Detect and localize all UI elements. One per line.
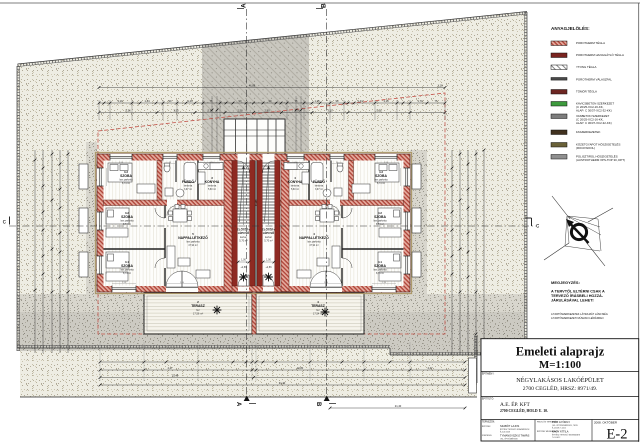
svg-text:NÉGYLAKÁSOS LAKÓÉPÜLET: NÉGYLAKÁSOS LAKÓÉPÜLET xyxy=(516,376,604,384)
svg-text:SZOBA: SZOBA xyxy=(374,215,386,219)
svg-text:21,40: 21,40 xyxy=(395,404,402,408)
svg-text:31,40: 31,40 xyxy=(279,381,286,385)
svg-text:3,19: 3,19 xyxy=(117,99,123,103)
svg-text:ÉPÍTTETŐ:: ÉPÍTTETŐ: xyxy=(482,398,494,401)
svg-text:8,74 m²: 8,74 m² xyxy=(377,182,385,185)
svg-text:4,47: 4,47 xyxy=(427,366,433,370)
svg-text:(AUSTROTHERM XPS-TOP 30, DPT): (AUSTROTHERM XPS-TOP 30, DPT) xyxy=(576,158,625,162)
svg-text:3,50: 3,50 xyxy=(173,108,179,112)
svg-text:YTONG TÉGLA: YTONG TÉGLA xyxy=(576,64,597,69)
svg-text:1,26: 1,26 xyxy=(187,99,193,103)
svg-text:É-3-01/2008: É-3-01/2008 xyxy=(500,430,510,433)
svg-text:A: A xyxy=(241,3,248,8)
svg-text:2700 CEGLÉD, HOLD U. 10.: 2700 CEGLÉD, HOLD U. 10. xyxy=(500,408,548,413)
svg-text:SZOBA: SZOBA xyxy=(375,174,387,178)
svg-text:FÜRDŐ: FÜRDŐ xyxy=(313,179,325,184)
svg-text:3,97 m²: 3,97 m² xyxy=(184,188,192,191)
svg-text:2,50: 2,50 xyxy=(264,108,270,112)
svg-text:1,00: 1,00 xyxy=(266,259,271,262)
svg-text:M=1:100: M=1:100 xyxy=(539,359,582,371)
svg-text:3,19: 3,19 xyxy=(383,99,389,103)
svg-text:B: B xyxy=(321,3,328,8)
svg-text:T-01-0412: T-01-0412 xyxy=(552,437,560,439)
svg-text:8,74 m²: 8,74 m² xyxy=(123,223,131,226)
svg-text:TÖMÖR TÉGLA: TÖMÖR TÉGLA xyxy=(576,89,597,94)
svg-text:POROTHERM TÉGLA: POROTHERM TÉGLA xyxy=(576,40,605,45)
svg-text:A: A xyxy=(235,402,241,407)
svg-text:POROTHERM HANGGÁTLÓ TÉGLA: POROTHERM HANGGÁTLÓ TÉGLA xyxy=(576,52,624,57)
svg-text:POROTHERM VÁLASZFAL: POROTHERM VÁLASZFAL xyxy=(576,78,612,82)
svg-text:É-1/2008. T-0412: É-1/2008. T-0412 xyxy=(552,426,566,429)
svg-text:+2,86: +2,86 xyxy=(265,266,272,269)
svg-text:8,74 m²: 8,74 m² xyxy=(123,272,131,275)
svg-text:3,50: 3,50 xyxy=(327,108,333,112)
svg-text:ÉPÍTMÉNY:: ÉPÍTMÉNY: xyxy=(482,373,495,376)
svg-text:4,47: 4,47 xyxy=(167,366,173,370)
svg-text:NAPPALI-ÉTKEZŐ: NAPPALI-ÉTKEZŐ xyxy=(178,235,208,240)
svg-text:A.E. ÉP. KFT: A.E. ÉP. KFT xyxy=(500,400,531,408)
svg-text:17,56 m²: 17,56 m² xyxy=(193,312,203,316)
svg-text:TERVEZŐ ÍRÁSBELI HOZZÁ-: TERVEZŐ ÍRÁSBELI HOZZÁ- xyxy=(551,293,604,298)
svg-text:TERVEZŐK:: TERVEZŐK: xyxy=(482,421,495,424)
svg-text:5,70 m²: 5,70 m² xyxy=(264,240,273,243)
svg-text:1,70: 1,70 xyxy=(417,99,423,103)
svg-text:SZOBA: SZOBA xyxy=(121,264,133,268)
svg-text:47,94 m²: 47,94 m² xyxy=(309,244,319,247)
svg-text:FÜRDŐ: FÜRDŐ xyxy=(182,179,194,184)
svg-text:1,26: 1,26 xyxy=(314,99,320,103)
svg-text:15,48: 15,48 xyxy=(172,373,179,377)
svg-text:A TARTÓSZERKEZETI MŰSZAKI LEÍR: A TARTÓSZERKEZETI MŰSZAKI LEÍRÁSBAN xyxy=(551,317,604,320)
svg-text:ALAP: C 30/37-XC2-32-KK): ALAP: C 30/37-XC2-32-KK) xyxy=(576,109,612,113)
svg-text:10,80: 10,80 xyxy=(297,366,304,370)
svg-text:TYMANOVSZKIJ TAMÁS: TYMANOVSZKIJ TAMÁS xyxy=(500,434,530,438)
svg-text:A TARTÓSZERKEZETEK LÁTRAJZÁT L: A TARTÓSZERKEZETEK LÁTRAJZÁT LÁSD MÉG xyxy=(551,313,608,316)
svg-text:2700 CEGLÉD, HRSZ: 8971/49.: 2700 CEGLÉD, HRSZ: 8971/49. xyxy=(523,384,598,392)
svg-text:41,88: 41,88 xyxy=(249,83,256,87)
svg-text:ALAP: C 30/37-XC2-32-KK): ALAP: C 30/37-XC2-32-KK) xyxy=(576,121,612,125)
svg-text:KONYHA: KONYHA xyxy=(288,180,303,184)
svg-text:5,36: 5,36 xyxy=(125,108,131,112)
svg-text:FASZERKEZETEK: FASZERKEZETEK xyxy=(576,130,600,134)
svg-text:SZOBA: SZOBA xyxy=(121,215,133,219)
svg-text:STATIKUS:: STATIKUS: xyxy=(482,434,492,437)
svg-text:1,18: 1,18 xyxy=(437,83,443,87)
svg-text:KONYHA: KONYHA xyxy=(205,180,220,184)
svg-text:(ROCKWOOL): (ROCKWOOL) xyxy=(576,146,595,150)
svg-text:ANYAGJELÖLÉS:: ANYAGJELÖLÉS: xyxy=(551,24,590,31)
svg-text:A TERVTŐL ELTÉRNI CSAK A: A TERVTŐL ELTÉRNI CSAK A xyxy=(551,289,605,294)
svg-text:5,60 m²: 5,60 m² xyxy=(208,188,216,191)
svg-text:3,97 m²: 3,97 m² xyxy=(315,188,323,191)
svg-text:5,60 m²: 5,60 m² xyxy=(291,188,299,191)
svg-text:TERASZ: TERASZ xyxy=(311,304,325,308)
svg-text:8,74 m²: 8,74 m² xyxy=(376,223,384,226)
svg-text:2008. OKTÓBER: 2008. OKTÓBER xyxy=(594,420,618,425)
svg-text:SZOBA: SZOBA xyxy=(120,174,132,178)
svg-text:LÉPCSŐ: LÉPCSŐ xyxy=(263,230,275,235)
svg-text:TERASZ: TERASZ xyxy=(191,304,205,308)
svg-text:NAPPALI-ÉTKEZŐ: NAPPALI-ÉTKEZŐ xyxy=(299,235,329,240)
svg-text:JÁRULÁSÁVAL LEHET!: JÁRULÁSÁVAL LEHET! xyxy=(551,298,594,303)
svg-text:2,50: 2,50 xyxy=(237,108,243,112)
svg-text:2,76: 2,76 xyxy=(207,108,213,112)
svg-text:Emeleti alaprajz: Emeleti alaprajz xyxy=(516,345,605,359)
svg-text:E-2: E-2 xyxy=(607,427,628,442)
svg-text:8,74 m²: 8,74 m² xyxy=(376,272,384,275)
svg-text:MEGJEGYZÉS:: MEGJEGYZÉS: xyxy=(551,280,580,285)
svg-text:SZOBA: SZOBA xyxy=(374,264,386,268)
svg-text:1,44: 1,44 xyxy=(357,99,363,103)
svg-text:ÉPÍTÉSZ:: ÉPÍTÉSZ: xyxy=(482,425,491,428)
svg-text:5,36: 5,36 xyxy=(376,108,382,112)
svg-text:47,94 m²: 47,94 m² xyxy=(188,244,198,247)
svg-text:PRIB GYÖRGY: PRIB GYÖRGY xyxy=(552,420,570,424)
svg-text:8,74 m²: 8,74 m² xyxy=(122,182,130,185)
svg-text:1,00: 1,00 xyxy=(241,259,246,262)
svg-text:LÉPCSŐ: LÉPCSŐ xyxy=(238,230,250,235)
svg-text:NAGY ATTILA: NAGY ATTILA xyxy=(552,430,569,434)
svg-text:+2,86: +2,86 xyxy=(240,266,247,269)
svg-text:OKL. ÉPÍTŐMÉRNÖK: OKL. ÉPÍTŐMÉRNÖK xyxy=(500,438,519,441)
svg-text:1,44: 1,44 xyxy=(144,99,150,103)
svg-text:B: B xyxy=(315,402,321,407)
